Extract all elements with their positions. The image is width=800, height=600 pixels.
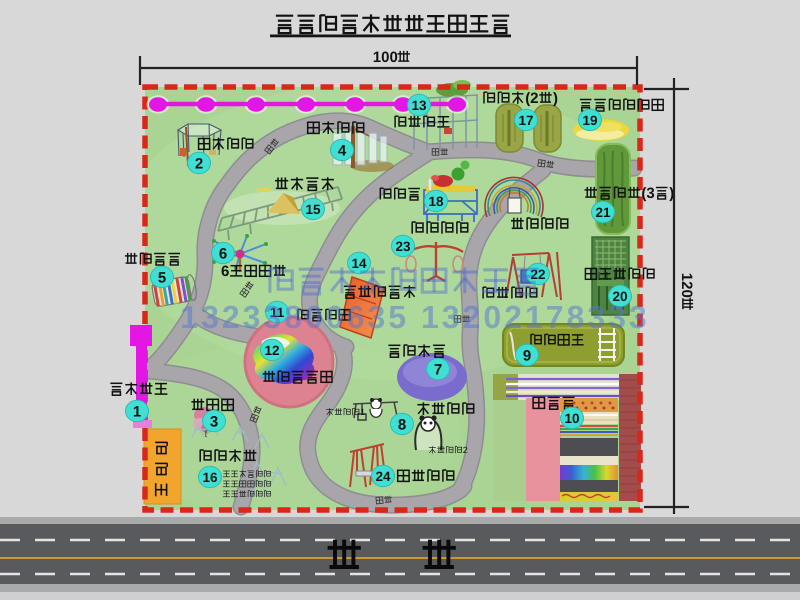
svg-text:5: 5 [158,269,166,286]
svg-text:17: 17 [518,113,533,128]
svg-text:23: 23 [395,239,411,254]
svg-text:(2: (2 [525,90,538,107]
svg-text:18: 18 [428,194,444,209]
svg-text:7: 7 [434,361,442,378]
svg-text:4: 4 [338,142,347,159]
svg-text:10: 10 [564,411,579,426]
svg-text:): ) [553,90,558,107]
svg-text:100: 100 [373,49,398,66]
svg-text:13233800635 13202178333: 13233800635 13202178333 [180,299,649,335]
svg-text:3: 3 [210,413,218,430]
svg-text:6: 6 [221,263,229,280]
svg-text:15: 15 [305,202,321,217]
svg-text:1: 1 [360,407,365,417]
svg-text:12: 12 [264,343,279,358]
svg-text:2: 2 [463,445,468,455]
svg-text:13: 13 [411,98,427,113]
svg-text:24: 24 [375,469,391,484]
svg-text:120: 120 [678,273,695,298]
svg-text:(3: (3 [641,185,654,202]
svg-text:16: 16 [202,470,218,485]
svg-text:6: 6 [219,245,227,262]
svg-text:8: 8 [398,416,406,433]
svg-text:1: 1 [133,403,141,420]
svg-text:21: 21 [595,205,611,220]
svg-text:2: 2 [195,155,203,172]
svg-text:14: 14 [351,256,367,271]
svg-text:9: 9 [523,347,531,364]
svg-text:19: 19 [582,113,597,128]
